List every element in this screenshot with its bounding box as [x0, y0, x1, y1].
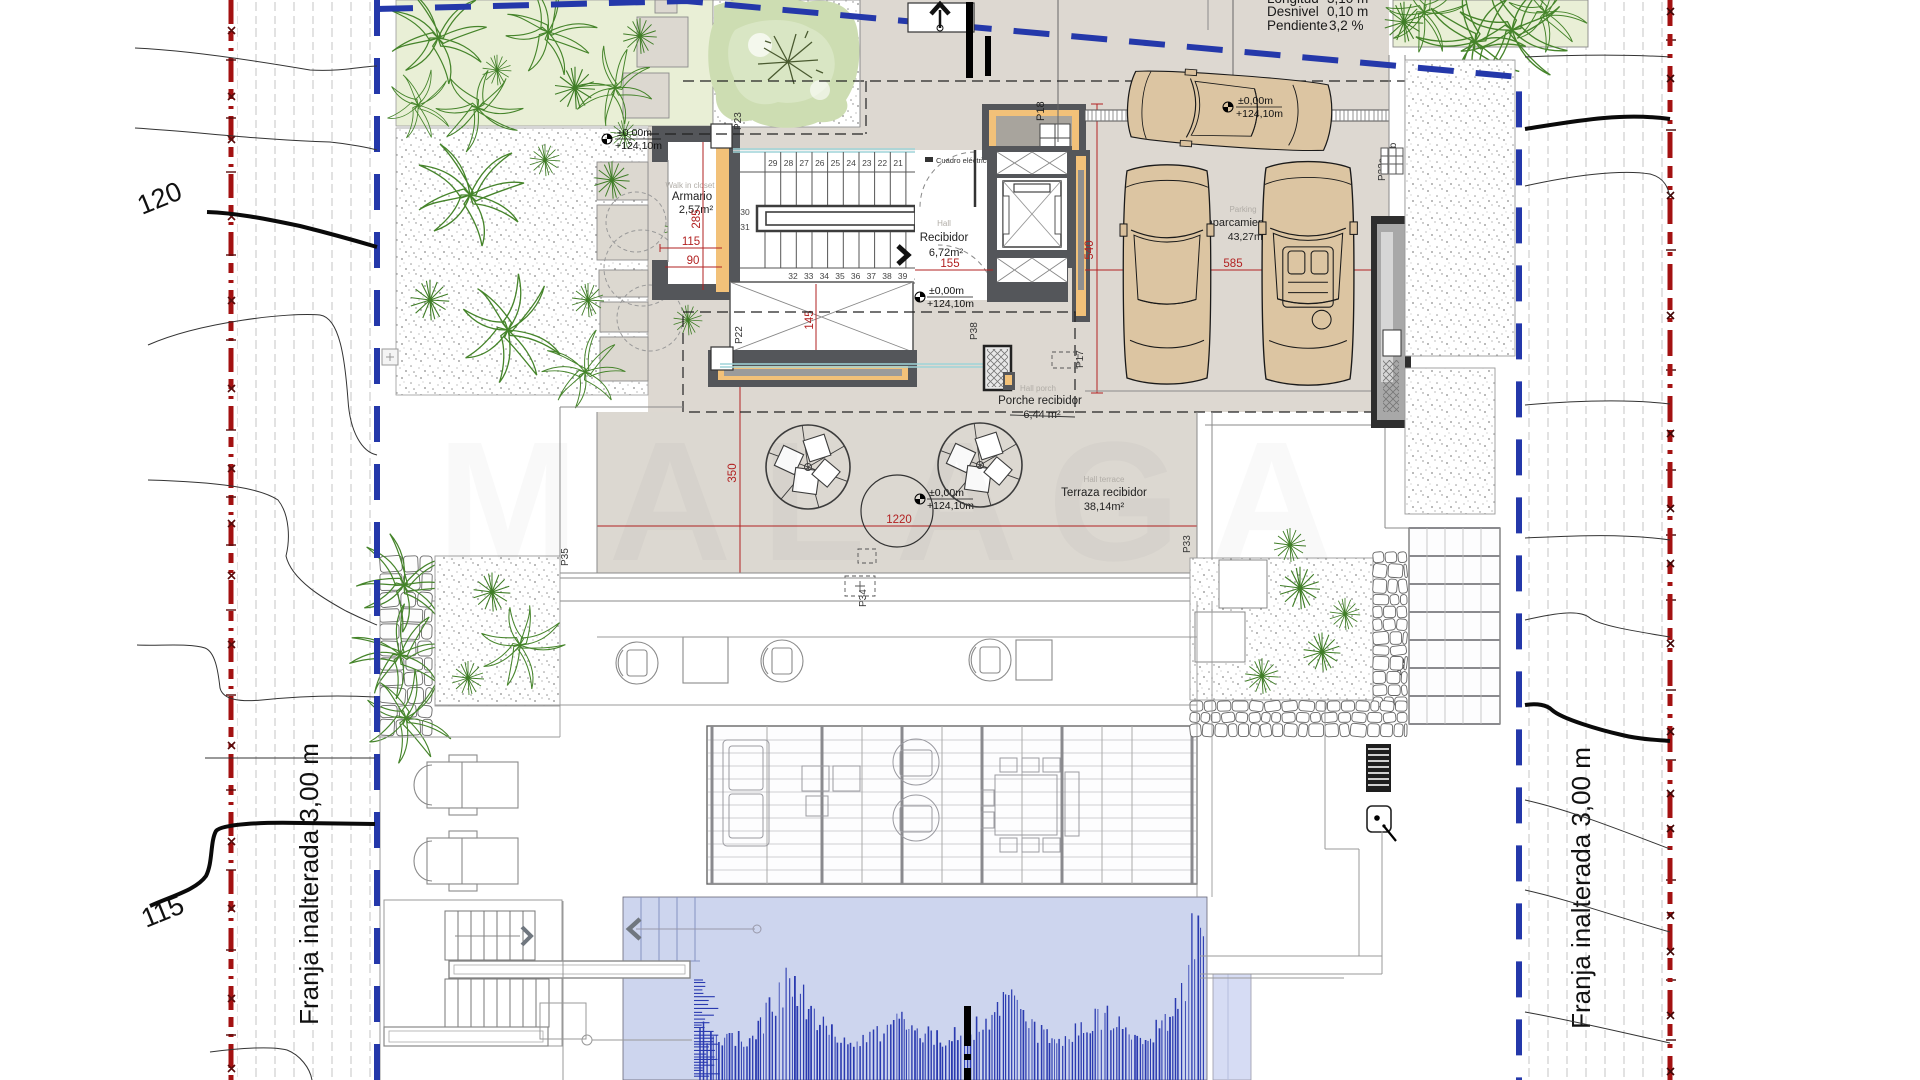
svg-text:585: 585	[1223, 258, 1242, 270]
svg-text:21: 21	[893, 158, 903, 168]
svg-text:+124,10m: +124,10m	[927, 298, 974, 310]
svg-text:Armario: Armario	[672, 191, 712, 203]
svg-text:27: 27	[799, 158, 809, 168]
svg-text:28: 28	[784, 158, 794, 168]
svg-text:Walk in closet: Walk in closet	[665, 181, 715, 190]
svg-text:Franja inalterada 3,00 m: Franja inalterada 3,00 m	[1566, 747, 1596, 1029]
svg-text:P18: P18	[1035, 101, 1047, 121]
svg-text:23: 23	[862, 158, 872, 168]
svg-text:26: 26	[815, 158, 825, 168]
svg-text:Recibidor: Recibidor	[920, 232, 969, 244]
svg-text:±0,00m: ±0,00m	[1238, 95, 1273, 107]
svg-text:31: 31	[740, 222, 750, 232]
svg-text:30: 30	[740, 207, 750, 217]
svg-text:P38: P38	[969, 322, 980, 340]
svg-text:29: 29	[768, 158, 778, 168]
svg-text:MALAGA: MALAGA	[437, 407, 1363, 597]
svg-text:90: 90	[687, 255, 700, 267]
svg-text:33: 33	[804, 271, 814, 281]
svg-text:Porche recibidor: Porche recibidor	[998, 395, 1082, 407]
svg-text:32: 32	[788, 271, 798, 281]
svg-text:24: 24	[846, 158, 856, 168]
svg-text:Hall porch: Hall porch	[1020, 384, 1056, 393]
svg-text:22: 22	[878, 158, 888, 168]
svg-text:3,2 %: 3,2 %	[1329, 18, 1364, 33]
svg-text:+124,10m: +124,10m	[615, 140, 662, 152]
svg-text:0,10 m: 0,10 m	[1327, 4, 1368, 19]
svg-text:P17: P17	[1075, 350, 1086, 368]
svg-text:±0,00m: ±0,00m	[929, 285, 964, 297]
svg-text:Parking: Parking	[1229, 205, 1256, 214]
svg-text:Hall: Hall	[937, 219, 951, 228]
svg-text:Pendiente: Pendiente	[1267, 18, 1328, 33]
svg-text:36: 36	[851, 271, 861, 281]
svg-text:Desnivel: Desnivel	[1267, 4, 1319, 19]
svg-text:155: 155	[940, 258, 959, 270]
svg-text:145: 145	[804, 310, 816, 329]
svg-text:38: 38	[882, 271, 892, 281]
svg-text:+124,10m: +124,10m	[1236, 108, 1283, 120]
svg-text:±0,00m: ±0,00m	[617, 127, 652, 139]
svg-text:540: 540	[1084, 240, 1096, 259]
svg-text:35: 35	[835, 271, 845, 281]
svg-text:34: 34	[820, 271, 830, 281]
svg-text:115: 115	[682, 236, 700, 248]
svg-text:39: 39	[898, 271, 908, 281]
svg-text:P23: P23	[733, 112, 744, 130]
svg-text:37: 37	[867, 271, 877, 281]
svg-text:25: 25	[831, 158, 841, 168]
svg-text:P22: P22	[734, 326, 745, 344]
svg-text:Franja inalterada 3,00 m: Franja inalterada 3,00 m	[294, 743, 324, 1025]
svg-text:285: 285	[691, 209, 703, 228]
